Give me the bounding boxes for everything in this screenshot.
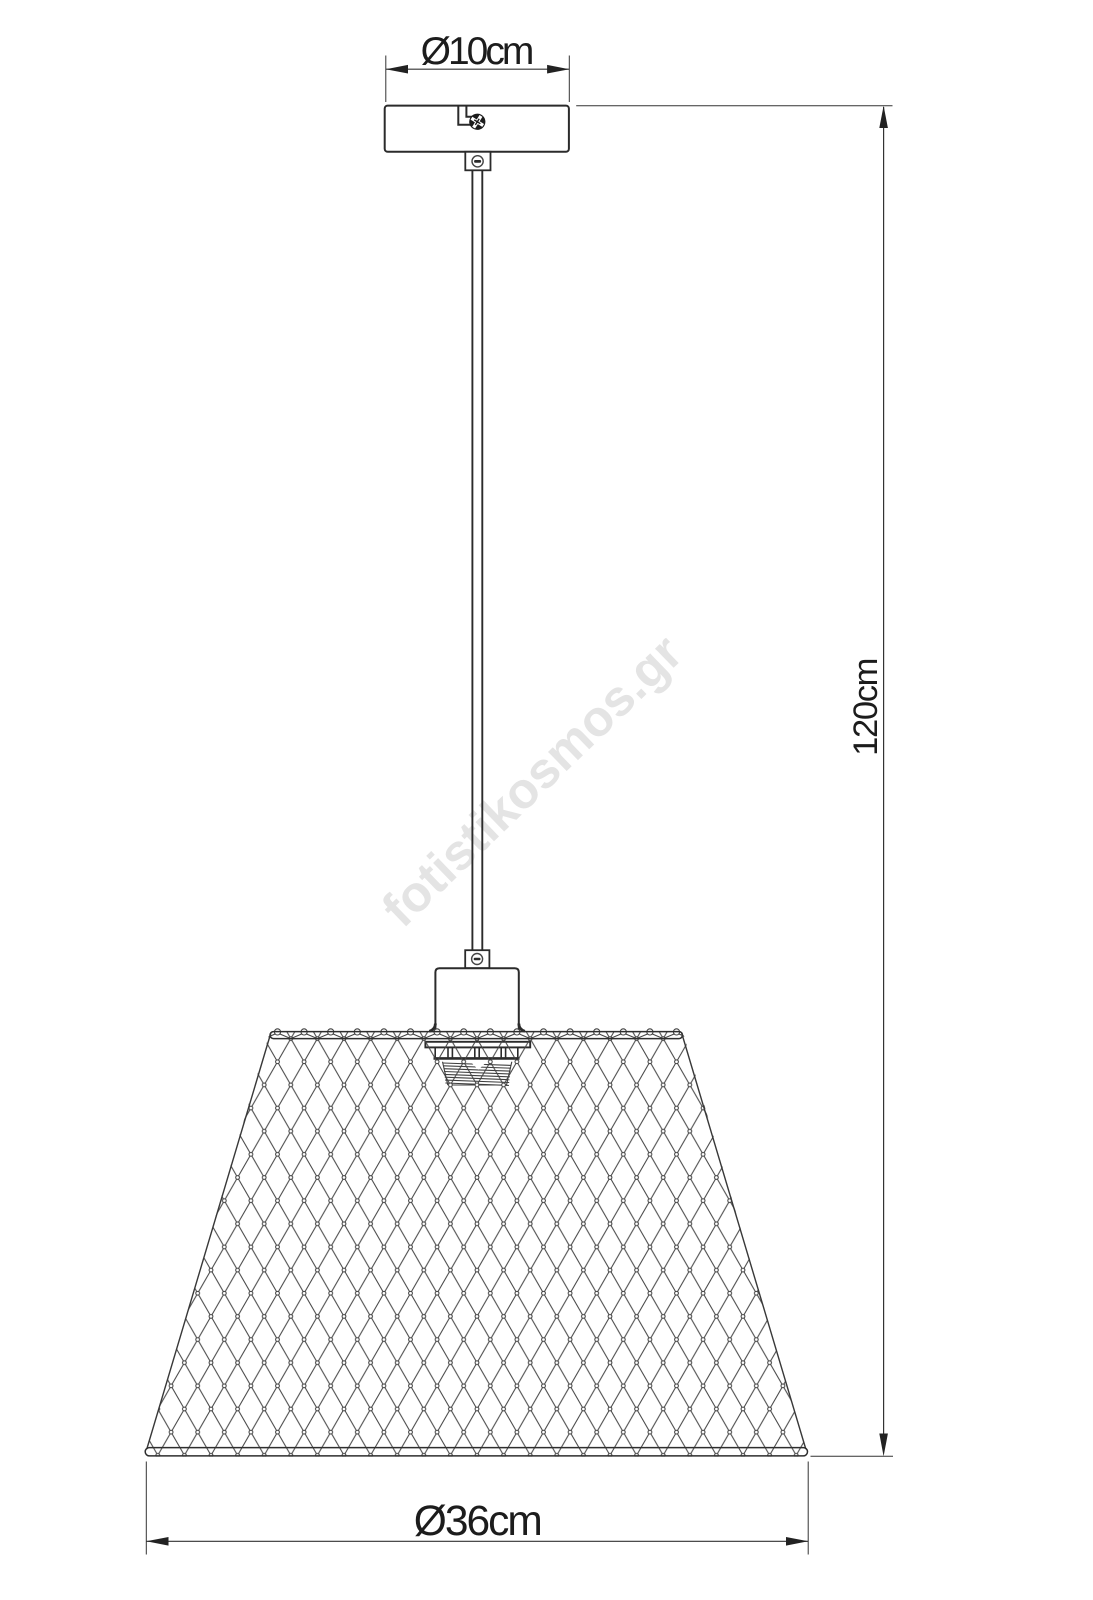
svg-text:Ø10cm: Ø10cm [421,30,532,73]
svg-text:120cm: 120cm [847,659,885,756]
svg-text:Ø36cm: Ø36cm [414,1498,541,1545]
